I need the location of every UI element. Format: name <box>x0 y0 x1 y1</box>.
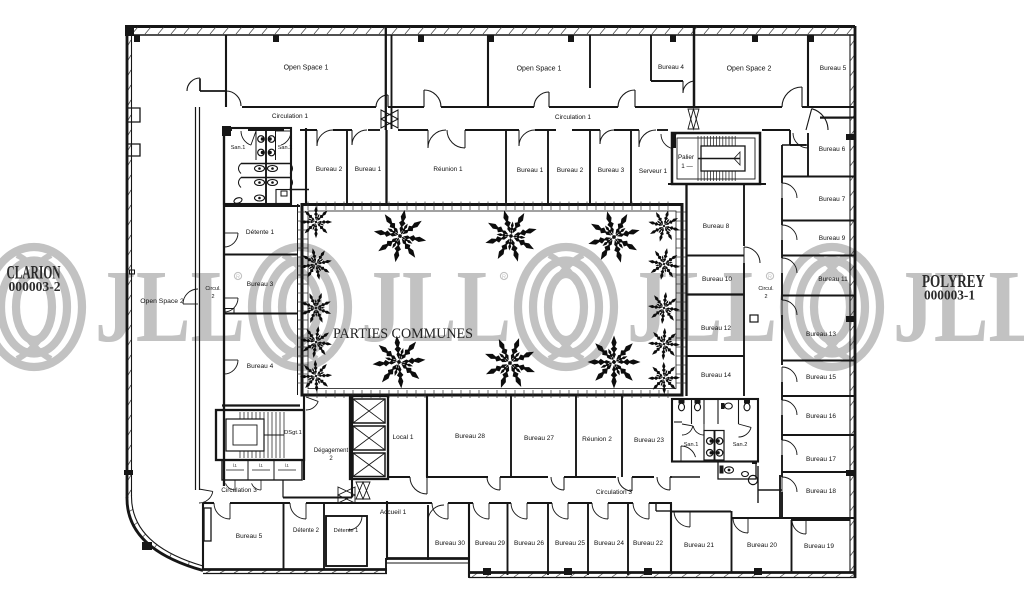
svg-text:Bureau 29: Bureau 29 <box>475 540 505 547</box>
svg-text:Bureau 19: Bureau 19 <box>804 543 834 550</box>
svg-text:Bureau 30: Bureau 30 <box>435 540 465 547</box>
svg-text:Bureau 1: Bureau 1 <box>355 166 382 173</box>
svg-text:Bureau 4: Bureau 4 <box>658 64 684 71</box>
svg-text:Serveur 1: Serveur 1 <box>639 168 668 175</box>
svg-text:Palier: Palier <box>678 154 694 161</box>
svg-text:Bureau 5: Bureau 5 <box>820 65 847 72</box>
svg-text:l.t.: l.t. <box>259 463 263 468</box>
svg-text:DSgt.1: DSgt.1 <box>284 430 302 436</box>
svg-text:Dégagement: Dégagement <box>314 448 349 454</box>
svg-text:San.2: San.2 <box>278 145 293 151</box>
svg-text:R: R <box>236 274 240 280</box>
svg-text:Bureau 26: Bureau 26 <box>514 540 544 547</box>
svg-text:San.1: San.1 <box>231 145 246 151</box>
svg-text:Bureau 1: Bureau 1 <box>517 167 544 174</box>
svg-text:Open Space 1: Open Space 1 <box>517 66 562 73</box>
svg-text:Bureau 4: Bureau 4 <box>247 363 274 370</box>
svg-text:Bureau 13: Bureau 13 <box>806 331 836 338</box>
svg-text:Bureau 16: Bureau 16 <box>806 413 836 420</box>
svg-text:Open Space 2: Open Space 2 <box>140 298 184 305</box>
svg-text:Bureau 27: Bureau 27 <box>524 435 554 442</box>
svg-text:Bureau 25: Bureau 25 <box>555 540 585 547</box>
svg-text:Bureau 22: Bureau 22 <box>633 540 663 547</box>
svg-text:Réunion 2: Réunion 2 <box>582 436 612 443</box>
svg-text:l.t.: l.t. <box>285 463 289 468</box>
svg-text:Circulation 3: Circulation 3 <box>221 487 257 494</box>
svg-text:Bureau 11: Bureau 11 <box>818 276 848 283</box>
svg-text:Circul.: Circul. <box>758 286 773 292</box>
svg-text:JLL: JLL <box>95 249 245 364</box>
svg-text:000003-1: 000003-1 <box>924 288 975 303</box>
svg-text:Bureau 9: Bureau 9 <box>819 235 846 242</box>
svg-text:Circulation 3: Circulation 3 <box>596 489 633 496</box>
svg-text:Circulation 1: Circulation 1 <box>272 113 309 120</box>
svg-text:Bureau 14: Bureau 14 <box>701 372 731 379</box>
svg-text:Bureau 6: Bureau 6 <box>819 146 846 153</box>
svg-text:Bureau 2: Bureau 2 <box>557 167 584 174</box>
svg-text:Bureau 20: Bureau 20 <box>747 542 777 549</box>
svg-text:2: 2 <box>212 294 215 300</box>
svg-text:Bureau 28: Bureau 28 <box>455 433 485 440</box>
svg-text:Bureau 3: Bureau 3 <box>598 167 625 174</box>
svg-text:Open Space 1: Open Space 1 <box>284 65 329 72</box>
svg-text:Bureau 24: Bureau 24 <box>594 540 624 547</box>
svg-text:1 —: 1 — <box>681 163 693 170</box>
svg-text:Bureau 23: Bureau 23 <box>634 437 664 444</box>
svg-text:Bureau 18: Bureau 18 <box>806 488 836 495</box>
svg-text:Bureau 8: Bureau 8 <box>703 223 730 230</box>
svg-text:Circulation 1: Circulation 1 <box>555 114 592 121</box>
svg-text:Détente 2: Détente 2 <box>293 528 320 534</box>
svg-text:PARTIES COMMUNES: PARTIES COMMUNES <box>333 326 473 342</box>
svg-text:Réunion 1: Réunion 1 <box>433 166 463 173</box>
svg-text:l.t.: l.t. <box>233 463 237 468</box>
svg-text:R: R <box>768 274 772 280</box>
svg-text:San.2: San.2 <box>733 442 748 448</box>
svg-text:2: 2 <box>765 294 768 300</box>
svg-text:Circul.: Circul. <box>205 286 220 292</box>
svg-text:R: R <box>502 274 506 280</box>
svg-text:Bureau 5: Bureau 5 <box>236 533 263 540</box>
svg-text:Bureau 7: Bureau 7 <box>819 196 846 203</box>
svg-text:Bureau 12: Bureau 12 <box>701 325 731 332</box>
svg-text:Bureau 15: Bureau 15 <box>806 374 836 381</box>
svg-text:Local 1: Local 1 <box>393 434 414 441</box>
svg-text:Bureau 2: Bureau 2 <box>316 166 343 173</box>
svg-text:Open Space 2: Open Space 2 <box>727 66 772 73</box>
svg-text:Bureau 21: Bureau 21 <box>684 542 714 549</box>
svg-text:Accueil 1: Accueil 1 <box>380 509 407 516</box>
svg-text:Bureau 3: Bureau 3 <box>247 281 274 288</box>
svg-text:Bureau 10: Bureau 10 <box>702 276 732 283</box>
svg-text:JLL: JLL <box>893 249 1024 364</box>
svg-text:Détente 1: Détente 1 <box>246 229 275 236</box>
svg-text:000003-2: 000003-2 <box>9 280 61 295</box>
svg-text:Détente 1: Détente 1 <box>334 528 359 534</box>
svg-text:Bureau 17: Bureau 17 <box>806 456 836 463</box>
